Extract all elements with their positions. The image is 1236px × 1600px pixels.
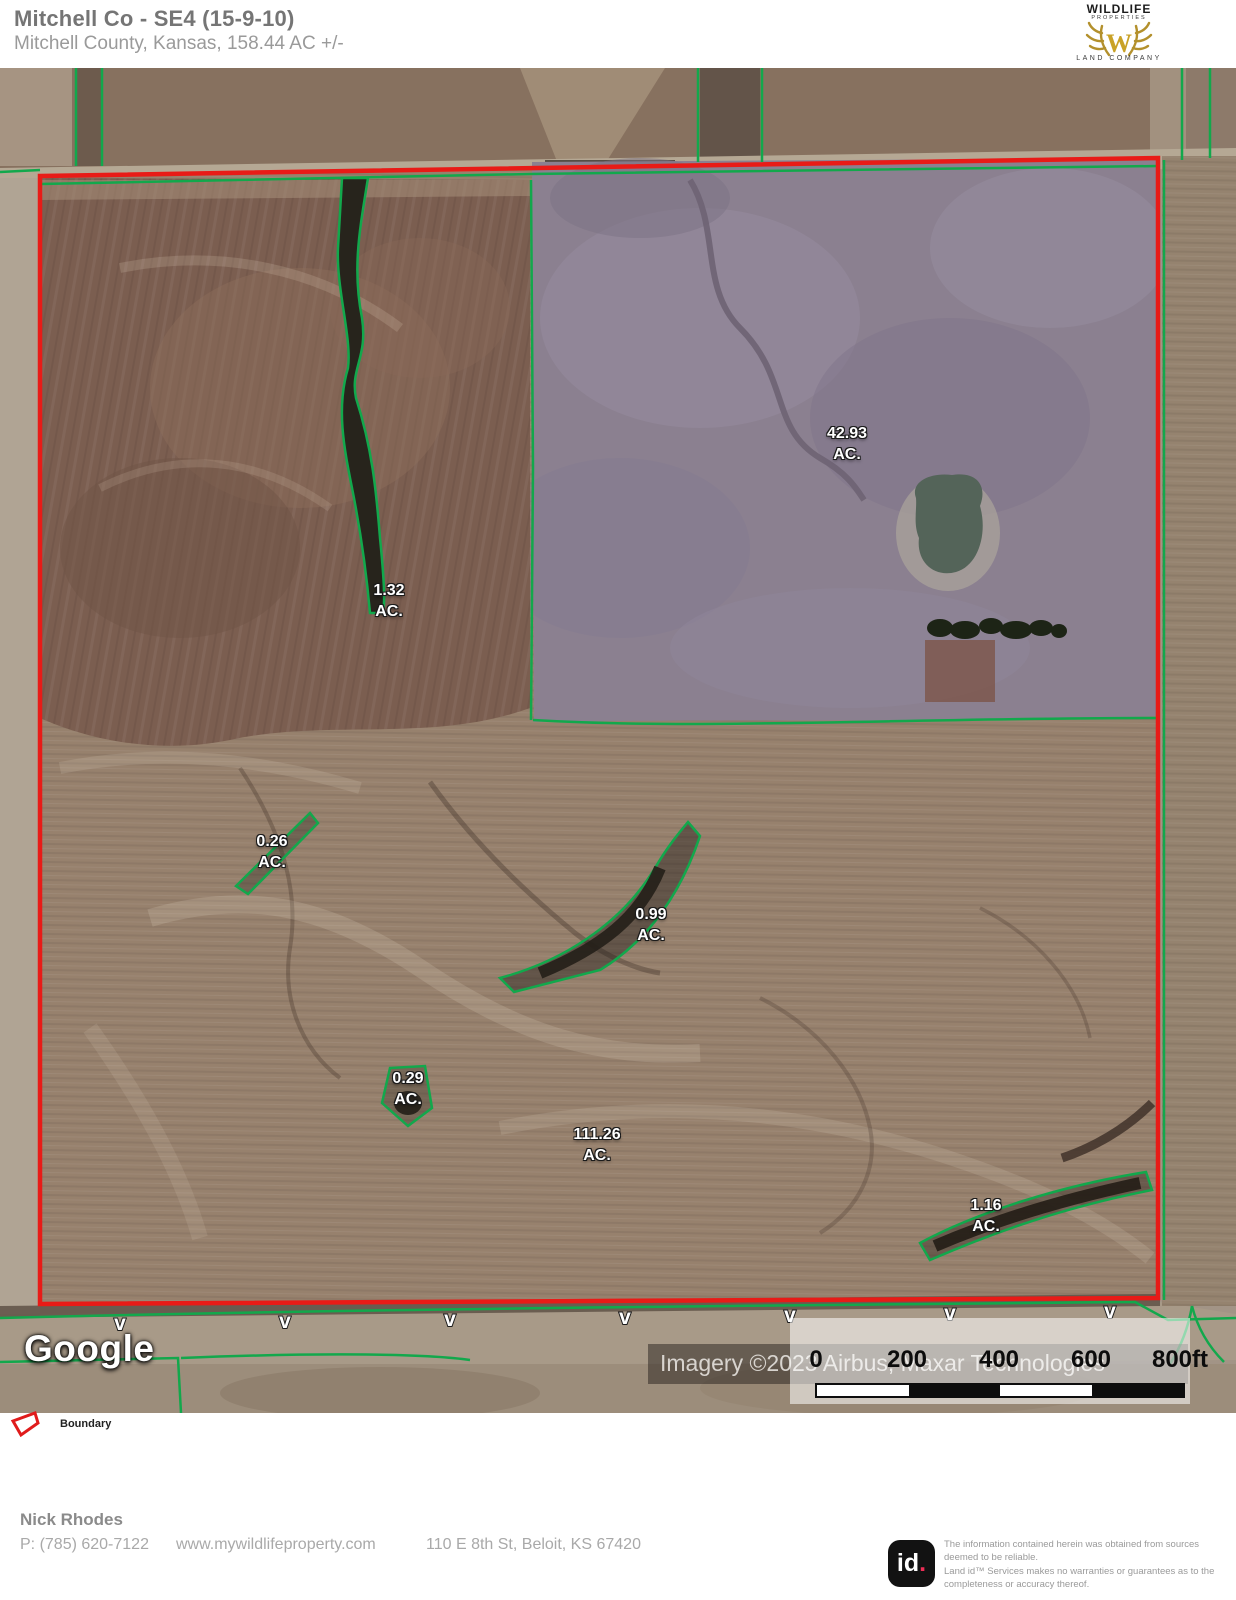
parcel-label-116: 1.16AC. (970, 1195, 1001, 1237)
map-legend: Boundary (8, 1410, 111, 1438)
scale-tick-400: 400 (979, 1346, 1019, 1374)
farmstead-patch (925, 640, 995, 702)
pond (915, 474, 983, 573)
page-subtitle: Mitchell County, Kansas, 158.44 AC +/- (14, 33, 344, 55)
agent-address: 110 E 8th St, Beloit, KS 67420 (426, 1536, 641, 1554)
parcel-label-099: 0.99AC. (635, 904, 666, 946)
agent-phone: P: (785) 620-7122 (20, 1536, 149, 1554)
road-gate-mark: v (619, 1306, 631, 1329)
parcel-label-029: 0.29AC. (392, 1068, 423, 1110)
scale-tick-200: 200 (887, 1346, 927, 1374)
parcel-label-4293: 42.93AC. (827, 423, 867, 465)
flyer-page: Mitchell Co - SE4 (15-9-10) Mitchell Cou… (0, 0, 1236, 1600)
agent-website: www.mywildlifeproperty.com (176, 1536, 376, 1554)
agent-name: Nick Rhodes (20, 1510, 123, 1530)
parcel-label-132: 1.32AC. (373, 580, 404, 622)
land-id-logo: id. (888, 1540, 935, 1587)
scale-tick-0: 0 (809, 1346, 822, 1374)
scale-tick-800: 800ft (1152, 1346, 1208, 1374)
scale-tick-600: 600 (1071, 1346, 1111, 1374)
boundary-legend-label: Boundary (60, 1418, 111, 1430)
wildlife-properties-logo: WILDLIFE PROPERTIES W LAND COMPANY (1064, 2, 1174, 62)
google-logo: Google (24, 1328, 154, 1370)
logo-land-company-text: LAND COMPANY (1064, 55, 1174, 62)
page-title: Mitchell Co - SE4 (15-9-10) (14, 6, 294, 32)
boundary-legend-icon (8, 1410, 42, 1438)
logo-wildlife-text: WILDLIFE (1064, 2, 1174, 16)
disclaimer-text: The information contained herein was obt… (944, 1538, 1236, 1591)
parcel-label-11126: 111.26AC. (573, 1124, 620, 1166)
road-gate-mark: v (444, 1308, 456, 1331)
scale-bar (815, 1383, 1185, 1398)
parcel-label-026: 0.26AC. (256, 831, 287, 873)
satellite-scene: v v v v v v v (0, 68, 1236, 1413)
svg-text:W: W (1106, 29, 1132, 57)
antlers-icon: W (1073, 21, 1165, 57)
west-road (0, 178, 40, 1368)
property-map: v v v v v v v (0, 68, 1236, 1413)
road-gate-mark: v (279, 1310, 291, 1333)
